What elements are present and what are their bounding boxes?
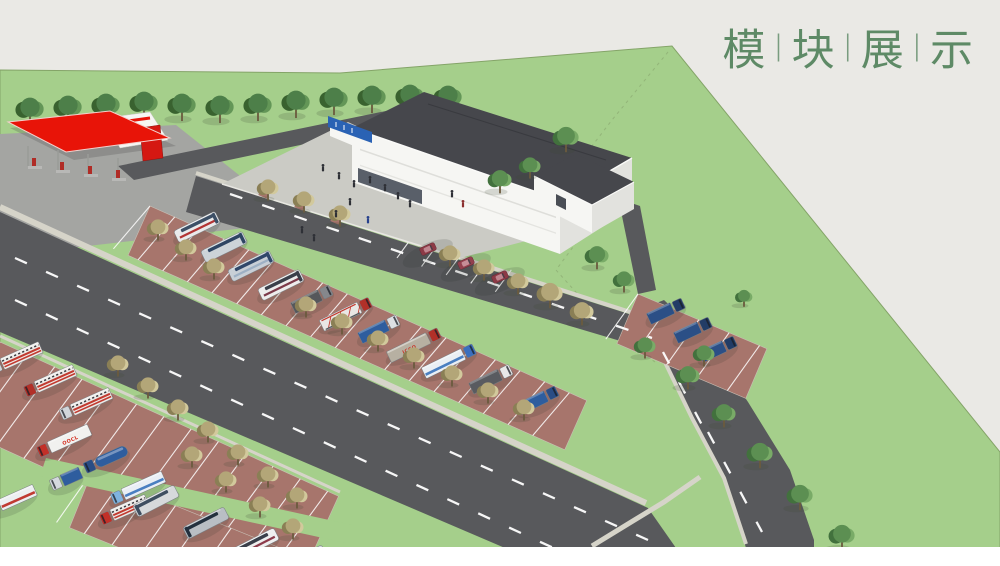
scene-svg: JCCOOOCL: [0, 0, 1000, 566]
person: [353, 180, 356, 187]
person: [369, 176, 372, 183]
person: [397, 192, 400, 199]
title-char: 块: [792, 16, 836, 78]
pump-island: [112, 178, 126, 181]
module-showcase-rendering: JCCOOOCL 模 | 块 | 展 | 示: [0, 0, 1000, 566]
fuel-pump: [32, 158, 36, 166]
person: [462, 200, 465, 207]
person: [301, 226, 304, 233]
person: [384, 184, 387, 191]
fuel-pump: [116, 170, 120, 178]
person: [451, 190, 454, 197]
person: [409, 200, 412, 207]
person: [335, 210, 338, 217]
title-separator: |: [914, 27, 921, 63]
person: [338, 172, 341, 179]
person: [367, 216, 370, 223]
fuel-pump: [60, 162, 64, 170]
page-title: 模 | 块 | 展 | 示: [722, 16, 974, 78]
title-char: 示: [930, 16, 974, 78]
pump-island: [84, 174, 98, 177]
title-separator: |: [845, 27, 852, 63]
fuel-pump: [88, 166, 92, 174]
title-char: 展: [861, 16, 905, 78]
pump-island: [56, 170, 70, 173]
person: [322, 164, 325, 171]
person: [313, 234, 316, 241]
pump-island: [28, 166, 42, 169]
title-separator: |: [775, 27, 782, 63]
bottom-white-margin: [0, 547, 1000, 566]
person: [349, 198, 352, 205]
title-char: 模: [722, 16, 766, 78]
